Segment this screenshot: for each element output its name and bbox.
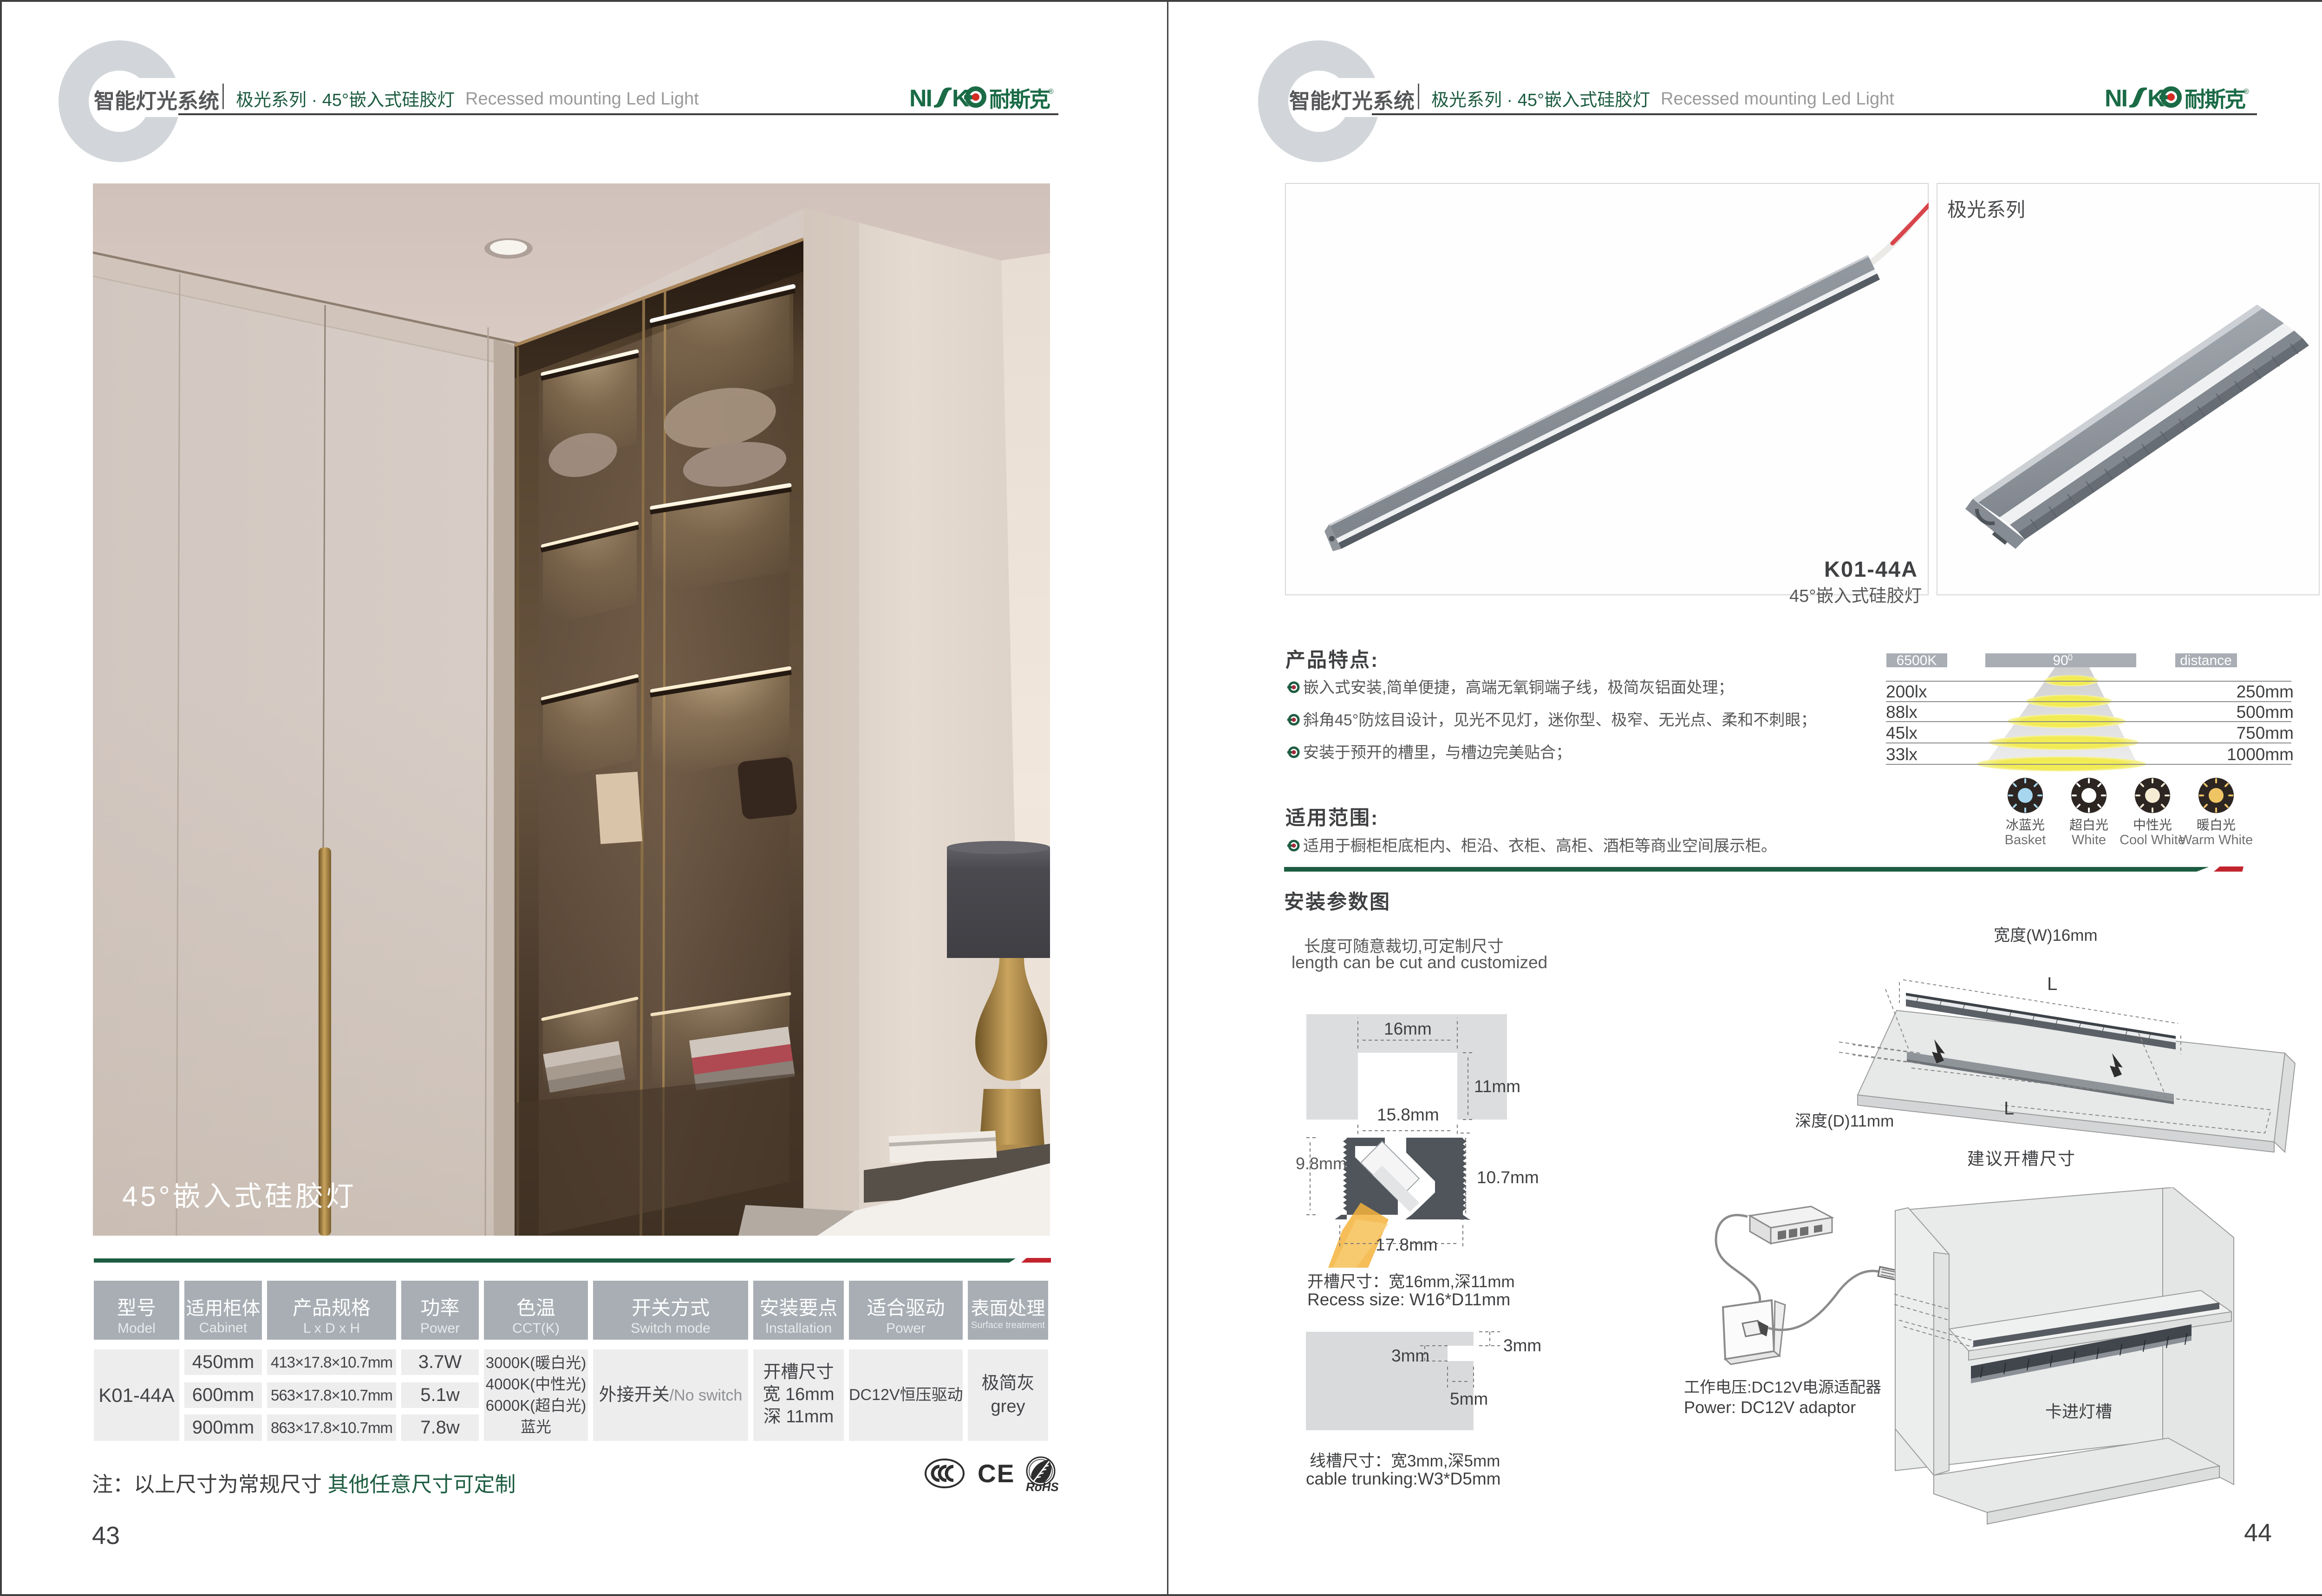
svg-text:250mm: 250mm (2237, 682, 2294, 701)
svg-text:®: ® (2244, 88, 2249, 96)
svg-text:NI: NI (909, 85, 932, 112)
svg-text:distance: distance (2180, 653, 2232, 668)
svg-text:CE: CE (978, 1459, 1015, 1488)
svg-text:宽度(W)16mm: 宽度(W)16mm (1994, 926, 2098, 945)
svg-text:16mm: 16mm (1384, 1019, 1432, 1038)
svg-text:15.8mm: 15.8mm (1377, 1105, 1439, 1124)
svg-text:冰蓝光: 冰蓝光 (2006, 818, 2045, 832)
svg-text:33lx: 33lx (1886, 745, 1918, 764)
svg-text:卡进灯槽: 卡进灯槽 (2045, 1402, 2112, 1421)
svg-text:88lx: 88lx (1886, 703, 1918, 722)
svg-text:17.8mm: 17.8mm (1376, 1235, 1438, 1254)
svg-text:5mm: 5mm (1450, 1389, 1488, 1408)
svg-text:6500K: 6500K (1897, 653, 1937, 668)
svg-text:0: 0 (2068, 653, 2073, 662)
svg-text:White: White (2072, 833, 2106, 847)
svg-text:200lx: 200lx (1886, 682, 1927, 701)
svg-text:建议开槽尺寸: 建议开槽尺寸 (1967, 1149, 2076, 1168)
svg-text:Cool White: Cool White (2120, 833, 2185, 847)
svg-text:超白光: 超白光 (2069, 818, 2108, 832)
svg-text:暖白光: 暖白光 (2197, 818, 2236, 832)
svg-text:®: ® (1048, 88, 1054, 96)
svg-text:L: L (2004, 1098, 2014, 1119)
svg-text:耐斯克: 耐斯克 (989, 87, 1050, 111)
svg-text:NI: NI (2105, 85, 2127, 112)
svg-text:中性光: 中性光 (2133, 818, 2172, 832)
svg-text:耐斯克: 耐斯克 (2185, 87, 2245, 111)
svg-text:3mm: 3mm (1391, 1346, 1429, 1365)
svg-text:90: 90 (2053, 653, 2068, 668)
svg-text:Basket: Basket (2005, 833, 2046, 847)
svg-text:10.7mm: 10.7mm (1477, 1168, 1539, 1187)
svg-text:11mm: 11mm (1474, 1077, 1520, 1096)
svg-text:750mm: 750mm (2237, 723, 2294, 743)
svg-text:RoHS: RoHS (1026, 1480, 1059, 1493)
svg-text:1000mm: 1000mm (2227, 745, 2294, 764)
svg-text:深度(D)11mm: 深度(D)11mm (1795, 1112, 1894, 1130)
svg-text:Warm White: Warm White (2179, 833, 2253, 847)
svg-text:L: L (2047, 974, 2057, 994)
svg-text:500mm: 500mm (2237, 703, 2294, 722)
svg-text:45lx: 45lx (1886, 723, 1918, 743)
svg-text:3mm: 3mm (1503, 1336, 1541, 1355)
